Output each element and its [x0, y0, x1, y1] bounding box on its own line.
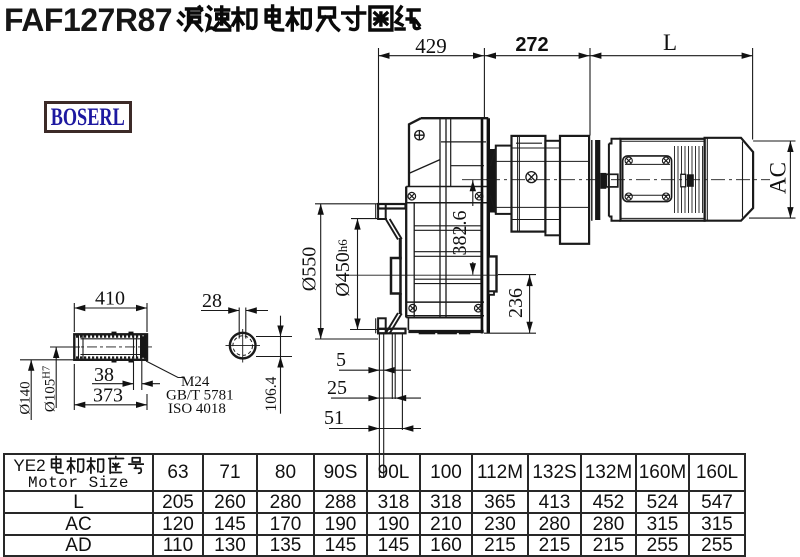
svg-text:38: 38 [94, 364, 114, 386]
svg-text:Ø450h6: Ø450h6 [332, 239, 354, 297]
svg-text:429: 429 [415, 34, 447, 58]
svg-text:272: 272 [515, 34, 548, 56]
svg-text:51: 51 [324, 407, 344, 429]
svg-text:ISO 4018: ISO 4018 [168, 401, 226, 417]
svg-text:25: 25 [327, 377, 347, 399]
svg-text:Ø140: Ø140 [18, 381, 34, 414]
svg-text:L: L [663, 30, 677, 55]
svg-text:410: 410 [95, 288, 125, 310]
svg-text:373: 373 [93, 385, 123, 407]
svg-text:5: 5 [336, 349, 346, 371]
svg-text:Ø550: Ø550 [299, 247, 321, 291]
svg-text:382.6: 382.6 [449, 211, 471, 256]
svg-text:AC: AC [766, 162, 791, 194]
svg-text:28: 28 [202, 290, 222, 312]
svg-text:236: 236 [505, 288, 527, 318]
svg-text:106.4: 106.4 [263, 376, 280, 411]
